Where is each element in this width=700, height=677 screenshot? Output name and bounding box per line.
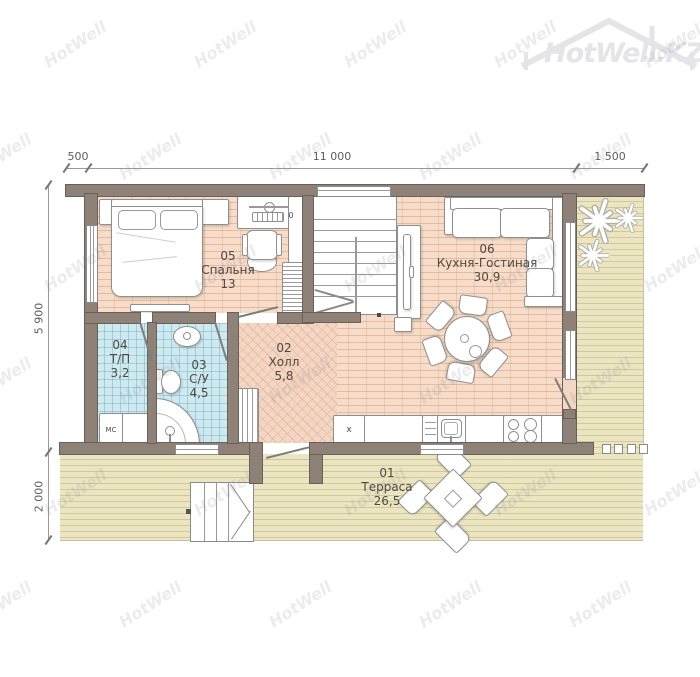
burner [508, 431, 519, 442]
stair-stringer [355, 237, 357, 314]
step-arrow-line [230, 484, 250, 513]
double-bed [111, 206, 203, 297]
sink-drain [183, 332, 191, 340]
watermark-text: HotWell [341, 17, 410, 71]
watermark-text: HotWell [191, 17, 260, 71]
shower-stem [169, 434, 171, 442]
drain-line [425, 428, 436, 429]
dimension-line-left [48, 185, 49, 540]
watermark-text: HotWell [566, 577, 635, 631]
stair-break-line [315, 301, 354, 314]
kitchen-window [420, 444, 464, 455]
table-decor [460, 334, 469, 343]
plant-icon [576, 239, 609, 272]
room-name: С/У [189, 372, 209, 386]
kitchen-counter [465, 415, 505, 444]
room-label-hall: 02 Холл 5,8 [269, 341, 300, 383]
dimension-line-top [66, 168, 644, 169]
wall-bath-divider [148, 323, 156, 443]
watermark-text: HotWell [416, 129, 485, 183]
room-number: 02 [269, 341, 300, 355]
room-name: Кухня-Гостиная [437, 256, 538, 270]
stair-marker-dot [377, 313, 381, 317]
dim-label-1500: 1 500 [594, 150, 626, 163]
step-line [228, 483, 229, 541]
logo-text: HotWell.KZ [544, 38, 700, 69]
drain-line [425, 422, 436, 423]
blanket-fold [116, 232, 175, 242]
room-label-kitchen-living: 06 Кухня-Гостиная 30,9 [437, 242, 538, 284]
pillow [118, 210, 156, 230]
stair-side-cabinet [394, 317, 412, 332]
tv-mount [409, 266, 414, 278]
dim-tick [45, 535, 53, 545]
railing-post [639, 444, 648, 454]
dining-chair [458, 294, 488, 317]
terrace-floor [60, 454, 643, 541]
room-label-bedroom: 05 Спальня 13 [201, 249, 254, 291]
desk-lamp-arm [249, 206, 289, 208]
sofa-cushion [500, 208, 550, 238]
stair-window [317, 186, 391, 197]
wall-stair-bottom [303, 313, 360, 322]
room-number: 01 [361, 466, 412, 480]
staircase [313, 196, 397, 315]
window-frame-line [570, 331, 571, 379]
sink-unit [437, 415, 467, 444]
room-area: 26,5 [361, 494, 412, 508]
plant-icon [613, 203, 643, 233]
wall-stair-left [303, 196, 313, 322]
dim-label-2000: 2 000 [32, 481, 45, 513]
pillow [160, 210, 198, 230]
room-label-terrace: 01 Терраса 26,5 [361, 466, 412, 508]
room-number: 05 [201, 249, 254, 263]
terrace-table-decor [444, 490, 462, 508]
kitchen-counter [364, 415, 424, 444]
room-name: Холл [269, 355, 300, 369]
office-chair-armrest [276, 234, 282, 256]
burner [524, 430, 537, 443]
room-number: 03 [189, 358, 209, 372]
room-number: 04 [110, 338, 130, 352]
room-area: 4,5 [189, 386, 209, 400]
room-number: 06 [437, 242, 538, 256]
window-frame-line [570, 223, 571, 311]
washing-machine: МС [99, 413, 124, 443]
table-decor [469, 345, 482, 358]
room-area: 5,8 [269, 369, 300, 383]
utility-cabinet [122, 413, 150, 443]
burner [508, 419, 519, 430]
stair-tread [314, 230, 396, 231]
watermark-text: HotWell [116, 129, 185, 183]
room-label-utility: 04 Т/П 3,2 [110, 338, 130, 380]
wall-entry-stub-left [250, 443, 262, 483]
step-marker-dot [186, 509, 191, 514]
stove [503, 415, 543, 444]
stair-tread [314, 219, 396, 220]
wall-bedroom-bottom-1 [85, 313, 140, 323]
watermark-text: HotWell [641, 465, 700, 519]
wardrobe [282, 262, 305, 315]
radiator [130, 304, 190, 312]
watermark-text: HotWell [416, 577, 485, 631]
window-frame-line [90, 226, 91, 302]
watermark-text: HotWell [0, 577, 35, 631]
watermark-text: HotWell [266, 577, 335, 631]
window-frame-line [421, 449, 463, 450]
sofa-cushion [452, 208, 502, 238]
step-arrow-line [231, 511, 251, 540]
sofa-armrest [524, 296, 565, 307]
room-area: 30,9 [437, 270, 538, 284]
step-line [204, 483, 205, 541]
kitchen-sink-basin [444, 422, 458, 435]
wall-bath-right [228, 313, 238, 443]
wall-bedroom-bottom-2 [153, 313, 215, 323]
window-frame-line [318, 190, 390, 191]
railing-post [614, 444, 623, 454]
nightstand-right [199, 199, 229, 225]
fridge: x [333, 415, 366, 444]
logo: HotWell.KZ [518, 12, 700, 74]
watermark-text: HotWell [0, 353, 35, 407]
room-name: Терраса [361, 480, 412, 494]
watermark-text: HotWell [41, 17, 110, 71]
room-label-bathroom: 03 С/У 4,5 [189, 358, 209, 400]
living-window-2 [565, 330, 576, 380]
fridge-mark: x [346, 423, 351, 437]
watermark-text: HotWell [0, 129, 35, 183]
window-frame-line [93, 226, 94, 302]
watermark-text: HotWell [641, 241, 700, 295]
desk-mark: 0 [288, 209, 293, 223]
entrance-steps [190, 482, 254, 542]
bathroom-window [175, 444, 219, 455]
room-area: 13 [201, 277, 254, 291]
railing-post [602, 444, 611, 454]
railing-post [627, 444, 636, 454]
room-area: 3,2 [110, 366, 130, 380]
step-line [216, 483, 217, 541]
wall-bottom-left [60, 443, 250, 454]
dim-tick [641, 163, 649, 173]
bedroom-window [86, 225, 98, 303]
dim-label-11000: 11 000 [313, 150, 352, 163]
keyboard [252, 212, 284, 222]
washing-machine-label: МС [106, 423, 117, 437]
window-frame-line [176, 449, 218, 450]
dim-label-500: 500 [68, 150, 89, 163]
room-name: Спальня [201, 263, 254, 277]
room-name: Т/П [110, 352, 130, 366]
dining-table [444, 316, 490, 362]
dim-label-5900: 5 900 [32, 303, 45, 335]
toilet-bowl [161, 370, 181, 394]
watermark-text: HotWell [116, 577, 185, 631]
living-window-1 [565, 222, 576, 312]
kitchen-counter [541, 415, 565, 444]
floor-plan-page: HotWell.KZ 500 11 000 1 500 5 900 2 000 [0, 0, 700, 677]
drain-line [425, 434, 436, 435]
blanket-fold [122, 256, 177, 263]
faucet [450, 436, 452, 442]
